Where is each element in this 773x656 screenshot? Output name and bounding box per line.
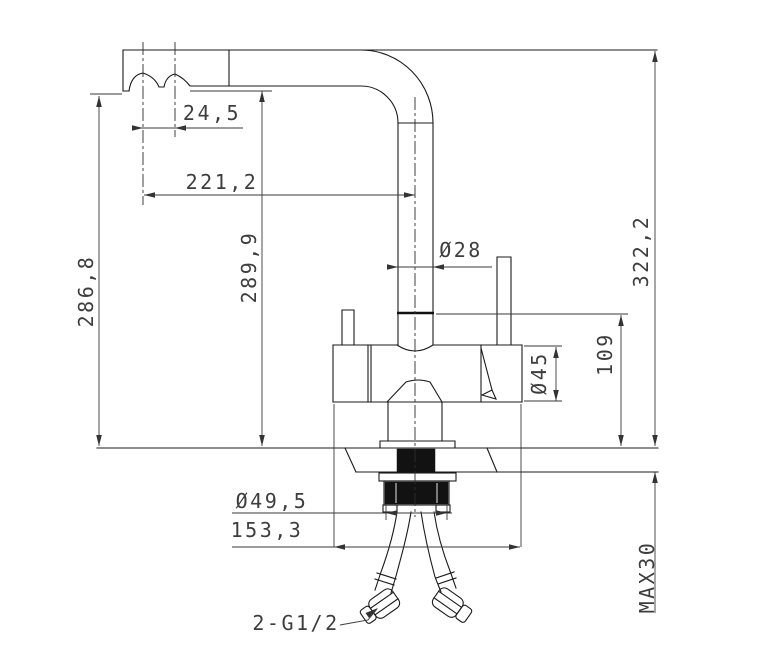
supply-hoses xyxy=(375,512,456,593)
dim-aerator-height-label: 286,8 xyxy=(74,255,98,328)
right-handle xyxy=(497,257,511,345)
dim-mounting-shank-diameter-label: Ø49,5 xyxy=(236,489,309,513)
dim-body-length-label: 153,3 xyxy=(231,518,304,542)
counter-deck xyxy=(97,448,658,472)
side-lever xyxy=(481,348,496,399)
spout-elbow xyxy=(361,50,433,123)
dim-spout-tube-diameter-label: Ø28 xyxy=(439,238,483,262)
riser-tube xyxy=(398,123,433,345)
dimension-lines xyxy=(90,51,655,625)
dim-spout-underside-height-label: 289,9 xyxy=(237,231,261,304)
dim-body-diameter-label: Ø45 xyxy=(527,351,551,395)
faucet-technical-drawing: 24,5 221,2 286,8 289,9 322,2 Ø28 Ø45 109… xyxy=(0,0,773,656)
dimension-labels: 24,5 221,2 286,8 289,9 322,2 Ø28 Ø45 109… xyxy=(74,101,659,635)
dim-spout-reach-label: 221,2 xyxy=(186,170,259,194)
spout-head xyxy=(123,50,361,91)
left-handle xyxy=(342,310,354,345)
base-neck xyxy=(380,402,455,448)
hose-fitting-right xyxy=(430,586,475,626)
dim-overall-height-label: 322,2 xyxy=(629,215,653,288)
dim-body-top-height-label: 109 xyxy=(593,332,617,376)
faucet-outline xyxy=(97,50,658,627)
threaded-shank xyxy=(385,449,448,504)
dim-aerator-spacing-label: 24,5 xyxy=(183,101,241,125)
drawing-canvas: 24,5 221,2 286,8 289,9 322,2 Ø28 Ø45 109… xyxy=(0,0,773,656)
dimension-arrows xyxy=(96,51,658,618)
dim-max-deck-thickness-label: MAX30 xyxy=(635,541,659,614)
label-hose-thread: 2-G1/2 xyxy=(252,611,339,635)
